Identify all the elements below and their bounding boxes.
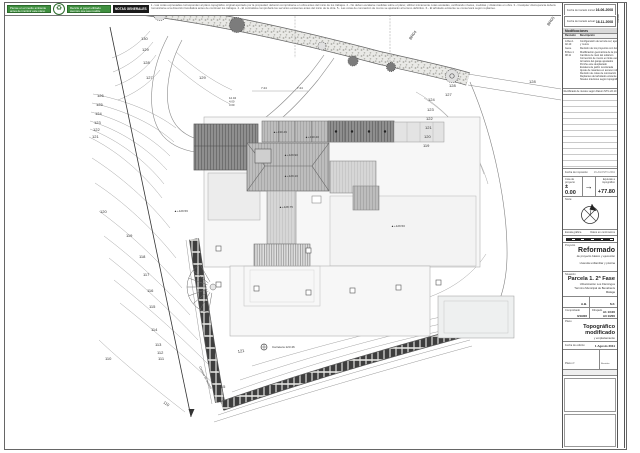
plan-label: 128 (143, 60, 150, 65)
project-number-value: 0/19/06 (577, 315, 587, 318)
format-label: Formato (617, 14, 620, 23)
graphic-scale-label: Escala gráfica (565, 231, 581, 235)
location-line: Málaga (565, 290, 615, 294)
plan-label: 119 (423, 143, 430, 148)
plan-label: 118 (139, 254, 146, 259)
location-label: Situación (565, 273, 576, 276)
scale-values: A1 1/100 A3 1/200 (603, 311, 615, 318)
title-block: Fecha de trazado inicial: 16-06-2008 Fec… (562, 3, 625, 448)
plan-label: 113 (155, 342, 162, 347)
plan-label: 111 (158, 356, 165, 361)
plan-label: 123 (94, 120, 101, 125)
plan-label: ▲+130.49 (273, 130, 287, 134)
plan-label: 110 (105, 356, 112, 361)
eco-badge-1: Piense en el medio ambiente antes de imp… (7, 5, 51, 13)
modification-row: B Rev.1 08.11Modificación geométrica de … (565, 51, 615, 81)
print-date-value: 16-AGOSTO-2011 (594, 171, 615, 174)
plan-label: 114 (151, 327, 158, 332)
credits-grid: Comprobado A.B. Dibujado S.F. Proyecto n… (563, 297, 617, 319)
drawn-by-value: S.F. (610, 303, 615, 306)
project-section: Proyecto Reformado de proyecto básico y … (563, 243, 617, 272)
equivalence-arrow-icon: → (583, 177, 596, 196)
topo-level-cell: Equivale a topográfico +77.80 (596, 177, 617, 196)
project-subtitle-2: vivienda unifamiliar y piscina (565, 261, 615, 265)
topo-level-label: Equivale a topográfico (598, 178, 615, 184)
scale-cell: Escala A1 1/100 A3 1/200 (590, 308, 617, 319)
plan-label: 126 (97, 93, 104, 98)
plan-label: ▲+129.50 (391, 224, 405, 228)
col-revision: Revisión (565, 34, 576, 38)
project-title: Reformado (565, 247, 615, 254)
edition-date-value: 1 Agosto 2011 (595, 344, 615, 348)
scale-a3: A3 1/200 (603, 314, 615, 318)
modification-row: Gene.Revisión de los proyectos con fecha… (565, 47, 615, 50)
north-label: Norte: (565, 198, 572, 201)
plan-label: 7.24 (297, 86, 303, 90)
modification-revision: B Rev.1 08.11 (565, 51, 578, 81)
top-road (127, 16, 561, 100)
plan-label: 127 (445, 92, 452, 97)
title-block-side-strip: Formato (618, 3, 625, 448)
plan-label: 112 (157, 350, 164, 355)
plan-label: 122 (93, 127, 100, 132)
location-section: Situación Parcela 1. 2ª Fase Urbanizació… (563, 272, 617, 297)
general-notes-text: 1.- Las cotas expresadas corresponden al… (151, 4, 559, 15)
date-current-row: Fecha de trazado actual: 16-11-2008 (564, 16, 616, 27)
drawn-by-cell: Dibujado S.F. (590, 297, 617, 308)
north-section: Norte: (563, 197, 617, 230)
plan-label: ▲+129.10 (284, 174, 298, 178)
level-reference-row: Cota de proyecto ± 0.00 → Equivale a top… (563, 177, 617, 197)
date-initial-value: 16-06-2008 (596, 8, 613, 12)
date-initial-label: Fecha de trazado inicial: (567, 9, 595, 12)
modification-revision: Gene. (565, 47, 578, 50)
plan-label: 121 (92, 134, 99, 139)
sheet-number-row: Plano nº 04.1 Revisión B (563, 350, 617, 370)
plan-label: 110 (162, 400, 171, 408)
project-label: Proyecto (565, 244, 575, 247)
plan-label: 122 (426, 116, 433, 121)
reference-box (564, 378, 616, 412)
checked-by-cell: Comprobado A.B. (563, 297, 590, 308)
print-date-row: Fecha de impresión 16-AGOSTO-2011 (563, 169, 617, 177)
plan-label: 130 (141, 36, 148, 41)
plan-label: 119 (126, 233, 133, 238)
plan-label: 120 (424, 134, 431, 139)
reference-row: Referencia (563, 370, 617, 376)
plan-label: 115 (219, 384, 226, 389)
plan-label: ▲+130.40 (305, 135, 319, 139)
plan-label: 129 (142, 47, 149, 52)
stamp-box (564, 414, 616, 447)
plan-label: 128 (529, 79, 536, 84)
scale-bar-segment (609, 238, 614, 241)
plan-label: 120 (100, 209, 107, 214)
project-subtitle: de proyecto básico y ejecución (565, 254, 615, 258)
plan-label: 124 (95, 111, 102, 116)
checked-by-value: A.B. (581, 303, 587, 306)
modification-row: A Rev.1 02.10Configuración de terraza su… (565, 40, 615, 46)
date-current-value: 16-11-2008 (596, 20, 613, 24)
site-plan-svg: 1301291281271261251241231221211201191181… (5, 16, 561, 448)
drawing-sheet: Piense en el medio ambiente antes de imp… (0, 0, 640, 452)
notes-bar: Piense en el medio ambiente antes de imp… (5, 3, 561, 16)
date-initial-row: Fecha de trazado inicial: 16-06-2008 (564, 4, 616, 15)
plan-label: ▲+129.90 (284, 153, 298, 157)
project-level-value: ± 0.00 (565, 184, 580, 196)
units-label: Datos en centímetros (590, 231, 615, 235)
site-plan: 1301291281271261251241231221211201191181… (5, 16, 561, 448)
plan-label: 121 (425, 125, 432, 130)
eco-badge-2: Recicle el papel utilizado siempre que s… (67, 5, 111, 13)
scale-bar (563, 236, 617, 243)
plan-label: 3.00 (229, 103, 235, 107)
sheet-number-cell: Plano nº 04.1 (563, 350, 599, 369)
project-number-cell: Proyecto nº 0/19/06 (563, 308, 590, 319)
edition-date-row: Fecha de edición 1 Agosto 2011 (563, 342, 617, 350)
plan-label: 121 (237, 348, 245, 354)
topo-level-value: +77.80 (598, 189, 615, 195)
plan-label: 127 (146, 75, 153, 80)
modification-revision: A Rev.1 02.10 (565, 40, 578, 46)
modification-description: Modificación geométrica de la piscinaCam… (580, 51, 617, 81)
plan-label: 128 (449, 83, 456, 88)
plan-label: ▲+128.75 (279, 205, 293, 209)
plan-label: 123 (427, 107, 434, 112)
plan-label: BR05 (546, 16, 556, 27)
plan-label: 115 (149, 304, 156, 309)
title-block-main: Fecha de trazado inicial: 16-06-2008 Fec… (562, 3, 618, 448)
revision-label: Revisión (601, 363, 609, 365)
empty-revision-rows (563, 95, 617, 169)
modification-description: Configuración de terraza sur; ajuste de … (580, 40, 617, 46)
revision-cell: Revisión B (599, 350, 617, 369)
plan-label: 129 (199, 75, 206, 80)
recycle-icon: ♻ (53, 3, 65, 15)
modifications-table: A Rev.1 02.10Configuración de terraza su… (563, 39, 617, 89)
col-description: Descripción (580, 34, 595, 38)
print-date-label: Fecha de impresión (565, 171, 588, 174)
edition-date-label: Fecha de edición (565, 344, 585, 347)
plan-label: ▲+129.56 (174, 209, 188, 213)
plan-label: 124 (428, 97, 435, 102)
plan-label: BR04 (408, 29, 418, 41)
plan-label: 116 (147, 288, 154, 293)
date-current-label: Fecha de trazado actual: (567, 20, 596, 23)
plan-label: 117 (143, 272, 150, 277)
project-level-cell: Cota de proyecto ± 0.00 (563, 177, 583, 196)
sheet-title-section: Plano Topográfico modificado y emplazami… (563, 319, 617, 342)
sheet-title-label: Plano (565, 320, 572, 323)
plan-label: 125 (96, 102, 103, 107)
sheet-title-sub: y emplazamiento (565, 336, 615, 340)
modification-description: Revisión de los proyectos con fecha 09 m… (580, 47, 617, 50)
general-notes-title: NOTAS GENERALES (113, 5, 149, 13)
plan-label: 7.24 (261, 86, 267, 90)
sheet-number-label: Plano nº (565, 362, 575, 365)
north-compass-icon (578, 202, 602, 226)
plan-label: Carretera 123.46 (272, 345, 295, 349)
